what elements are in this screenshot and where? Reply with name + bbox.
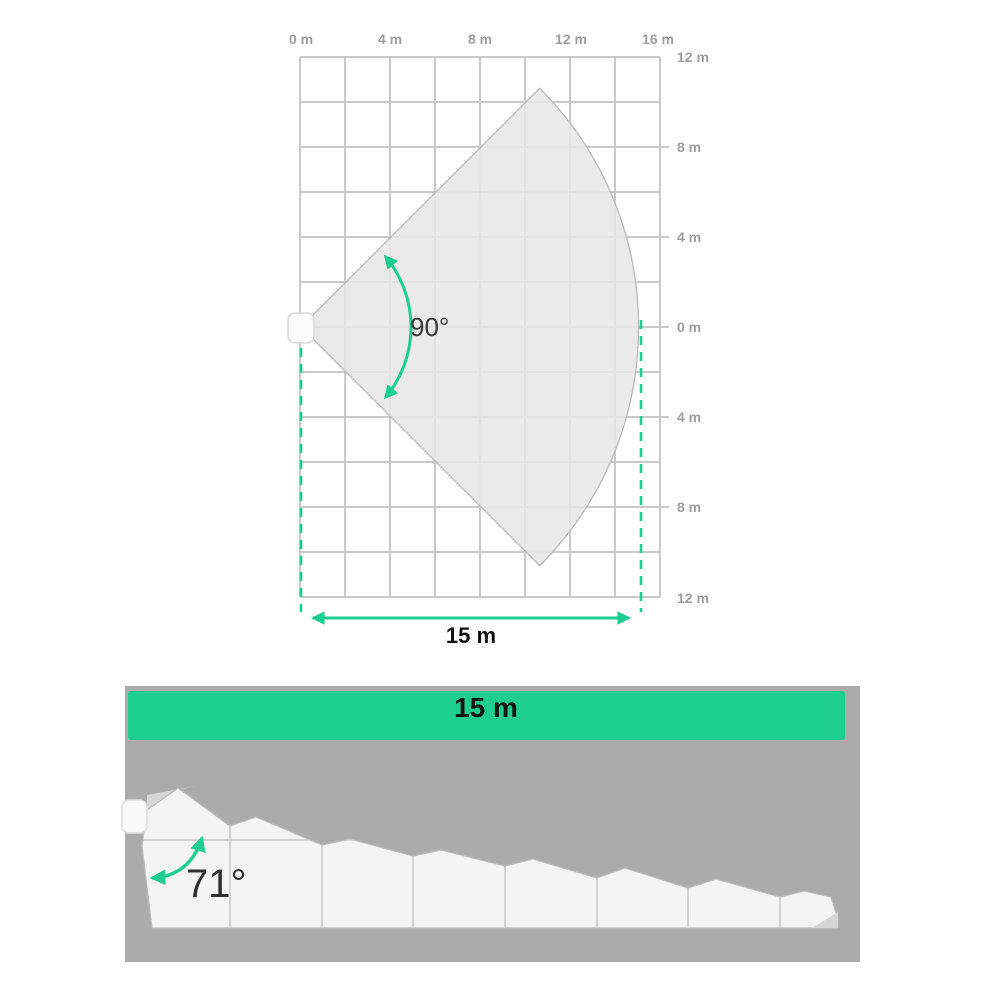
motion-sensor-icon-side-view [122, 800, 147, 833]
y-axis-label-12m-bot: 12 m [677, 590, 709, 606]
x-axis-label-4m: 4 m [378, 31, 402, 47]
width-value-label: 15 m [446, 623, 496, 648]
diagram-svg: 0 m 4 m 8 m 12 m 16 m 12 m 8 m 4 m 0 m 4… [0, 0, 1000, 1000]
x-axis-label-8m: 8 m [468, 31, 492, 47]
side-angle-value-label: 71° [186, 862, 247, 906]
top-view-diagram: 0 m 4 m 8 m 12 m 16 m 12 m 8 m 4 m 0 m 4… [288, 31, 709, 648]
length-value-label: 15 m [454, 692, 518, 723]
sensor-range-diagram-page: 0 m 4 m 8 m 12 m 16 m 12 m 8 m 4 m 0 m 4… [0, 0, 1000, 1000]
x-axis-label-12m: 12 m [555, 31, 587, 47]
side-view-diagram: 15 m 71° [122, 686, 860, 962]
y-axis-label-0m: 0 m [677, 319, 701, 335]
y-axis-label-8m-top: 8 m [677, 139, 701, 155]
angle-value-label: 90° [410, 312, 449, 342]
x-axis-label-0m: 0 m [289, 31, 313, 47]
x-axis-label-16m: 16 m [642, 31, 674, 47]
y-axis-label-12m-top: 12 m [677, 49, 709, 65]
motion-sensor-icon-top-view [288, 313, 314, 343]
y-axis-label-4m-bot: 4 m [677, 409, 701, 425]
detection-fan [301, 88, 639, 565]
y-axis-label-4m-top: 4 m [677, 229, 701, 245]
y-axis-label-8m-bot: 8 m [677, 499, 701, 515]
